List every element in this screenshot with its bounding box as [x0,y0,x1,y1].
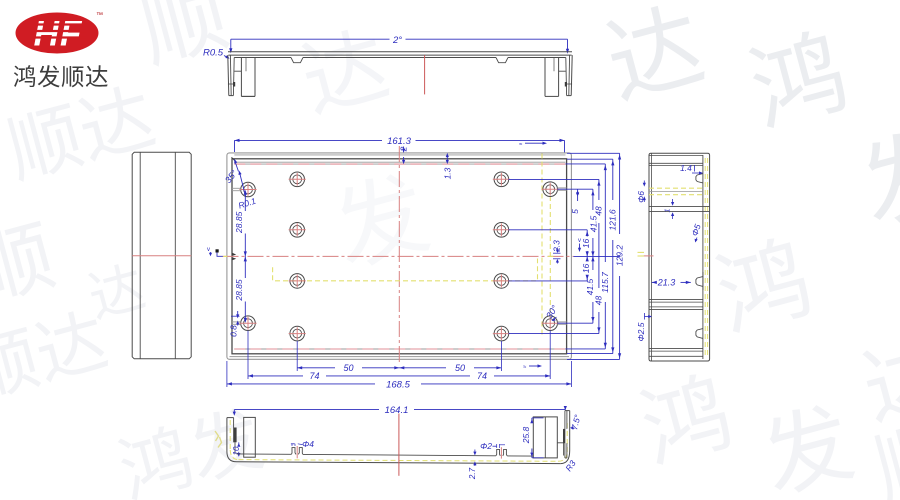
svg-text:16: 16 [581,239,591,249]
svg-text:28.85: 28.85 [234,279,244,302]
svg-text:Φ4: Φ4 [302,439,314,449]
svg-text:v: v [578,238,581,244]
svg-text:164.1: 164.1 [385,405,409,416]
svg-text:鸿发顺达: 鸿发顺达 [13,64,109,90]
svg-text:129.2: 129.2 [614,245,624,267]
svg-text:5: 5 [570,209,580,214]
svg-text:50: 50 [455,363,465,373]
svg-text:74: 74 [477,371,487,381]
svg-text:™: ™ [96,12,103,19]
svg-text:41.5: 41.5 [585,278,595,295]
svg-text:161.3: 161.3 [387,136,411,147]
svg-text:HF: HF [34,15,83,54]
svg-text:74: 74 [309,371,319,381]
svg-text:2.7: 2.7 [468,467,477,480]
svg-text:0.8: 0.8 [228,325,238,337]
svg-text:1.4: 1.4 [680,163,692,173]
svg-text:R0.5: R0.5 [203,48,224,59]
svg-text:16: 16 [581,264,591,274]
svg-text:1.3: 1.3 [443,167,453,179]
svg-text:1: 1 [665,208,672,212]
svg-text:115.7: 115.7 [600,272,610,293]
svg-text:48: 48 [594,296,604,306]
svg-text:v: v [207,247,210,253]
svg-text:168.5: 168.5 [386,379,410,390]
svg-text:21.3: 21.3 [657,278,676,288]
svg-text:50: 50 [343,363,353,373]
svg-text:48: 48 [594,206,604,216]
svg-text:Φ2: Φ2 [480,441,492,451]
svg-text:Φ2.5: Φ2.5 [636,322,646,341]
svg-text:2°: 2° [392,35,402,46]
svg-text:25.8: 25.8 [521,426,531,444]
svg-text:41.5: 41.5 [588,215,598,232]
svg-text:121.6: 121.6 [608,209,618,231]
svg-text:28.85: 28.85 [234,211,244,234]
